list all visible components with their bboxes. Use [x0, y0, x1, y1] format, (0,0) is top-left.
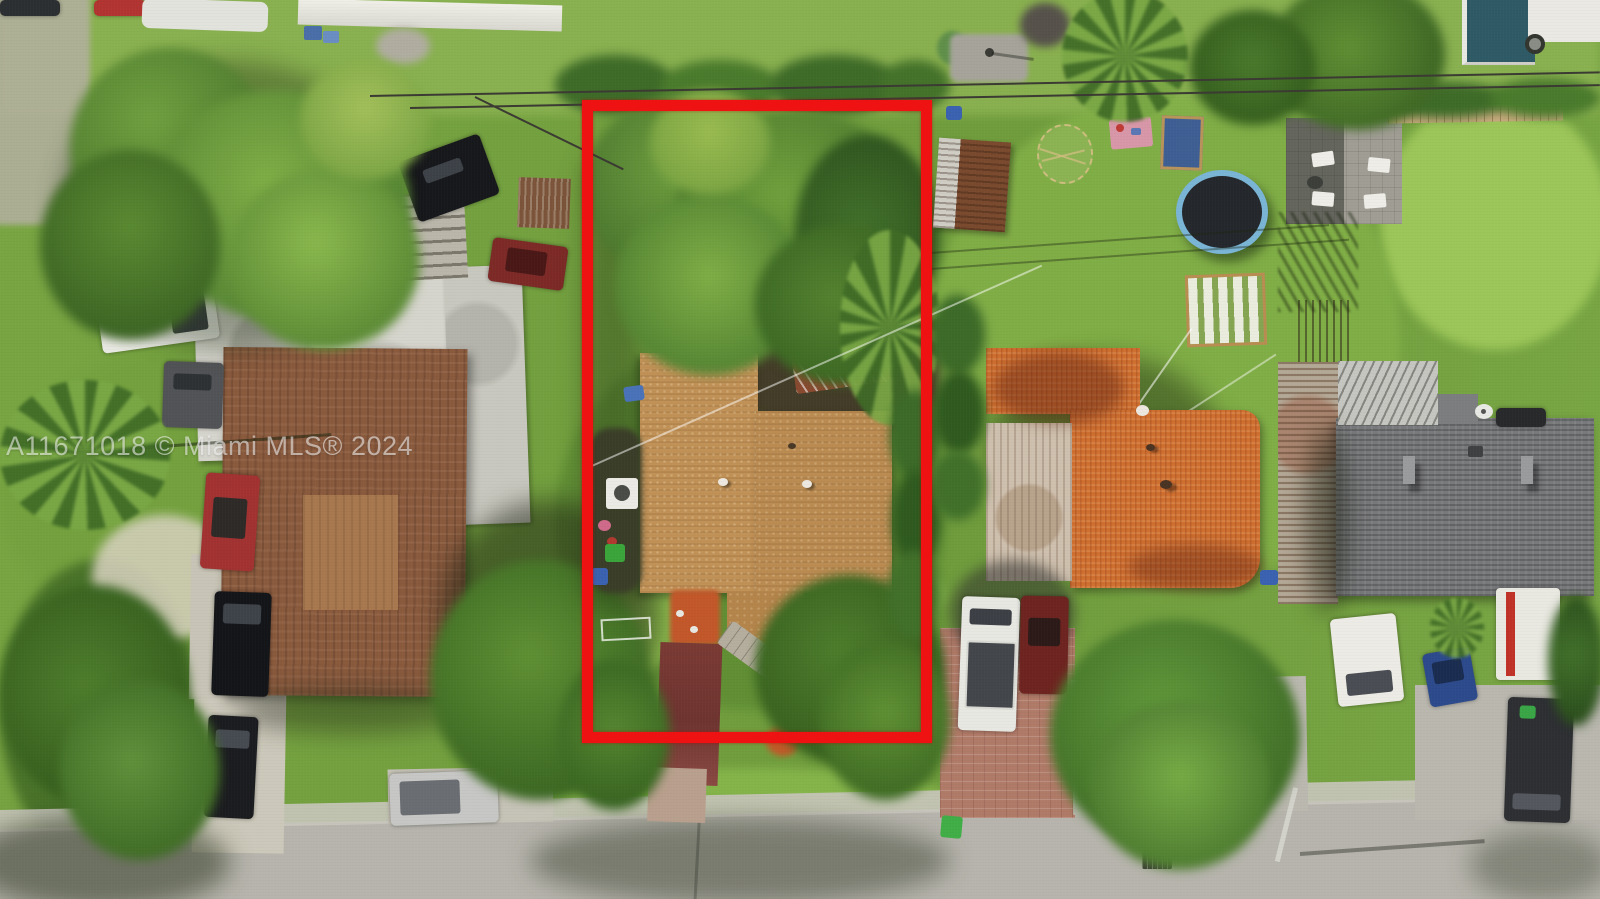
gray-roof-vent	[1403, 456, 1415, 484]
lounge-chair	[1363, 193, 1386, 209]
dark-red-sedan	[1019, 596, 1069, 695]
car-cover-tarp	[142, 0, 269, 32]
white-minivan	[1330, 613, 1405, 707]
tree-canopy-yellow	[300, 60, 430, 180]
black-suv-driveway	[211, 591, 272, 697]
blue-recycle-bin	[1260, 570, 1278, 585]
grass-right-meadow	[1380, 95, 1600, 350]
hedge-left-fence-rightlot	[933, 370, 985, 455]
mls-watermark: A11671018 © Miami MLS® 2024	[6, 429, 413, 463]
pool-equipment-ring	[1525, 34, 1545, 54]
dark-car-behind-grayhouse	[1496, 408, 1546, 427]
dark-gray-suv	[162, 361, 224, 429]
left-roof-light-patch	[303, 495, 398, 610]
blue-coolers	[304, 26, 322, 40]
satellite-dish	[1475, 404, 1493, 419]
red-convertible	[200, 472, 261, 572]
street-shadow-right	[1470, 830, 1600, 899]
lounge-chair	[1311, 191, 1334, 207]
tree-canopy	[230, 170, 420, 350]
tree-canopy-bottomleft	[60, 680, 220, 860]
white-pickup-truck	[958, 596, 1021, 732]
aerial-photo: A11671018 © Miami MLS® 2024	[0, 0, 1600, 899]
green-trash-bin	[940, 815, 963, 839]
tree-canopy	[40, 150, 220, 340]
tree-top-right	[1190, 10, 1315, 125]
sandbox-blue-tarp	[1160, 115, 1204, 170]
blue-bucket	[946, 106, 962, 120]
tree-shadow-on-orange-roof	[994, 352, 1124, 424]
play-pergola-swing	[1185, 273, 1267, 348]
gray-house-shadow	[1306, 428, 1348, 613]
palmetto-plant	[1430, 598, 1484, 658]
rusty-shed-right	[933, 138, 1011, 233]
hedge-left-fence-rightlot	[930, 450, 985, 520]
rock-pile	[376, 28, 430, 64]
fence-picket-shadow	[1298, 300, 1354, 366]
driveway-tree	[1090, 700, 1270, 870]
gray-house-roof	[1336, 418, 1594, 596]
swimming-pool	[1462, 0, 1535, 65]
patio-shadow-half	[1286, 118, 1344, 224]
tree-shadow-on-orange-roof	[1128, 545, 1263, 590]
blue-item-blanket	[1131, 128, 1141, 135]
junk-pile	[1020, 3, 1070, 47]
street-shadow-center	[530, 818, 950, 899]
patio-table	[1307, 176, 1323, 189]
rusty-shed-left	[517, 177, 571, 229]
subject-property-outline	[582, 100, 932, 743]
lounge-chair	[1367, 157, 1390, 173]
weathered-gable-roof	[986, 423, 1072, 581]
corrugated-metal-section	[1338, 361, 1438, 425]
blue-cooler-2	[323, 31, 339, 43]
roof-vent-dark	[1146, 444, 1155, 451]
gray-house-ext	[1434, 394, 1478, 424]
roof-white-vent	[1136, 405, 1149, 416]
hedge-left-fence-rightlot	[930, 295, 985, 375]
trampoline	[1176, 170, 1268, 254]
gray-roof-vent	[1521, 456, 1533, 484]
red-ladder-stripe	[1506, 592, 1515, 676]
red-item-blanket	[1116, 124, 1124, 132]
tree-right-edge	[1548, 596, 1600, 726]
roof-vent-dark	[1160, 480, 1172, 489]
gray-roof-vent-dark	[1468, 446, 1483, 457]
dark-car-top-corner	[0, 0, 60, 16]
red-car-top	[94, 0, 146, 16]
